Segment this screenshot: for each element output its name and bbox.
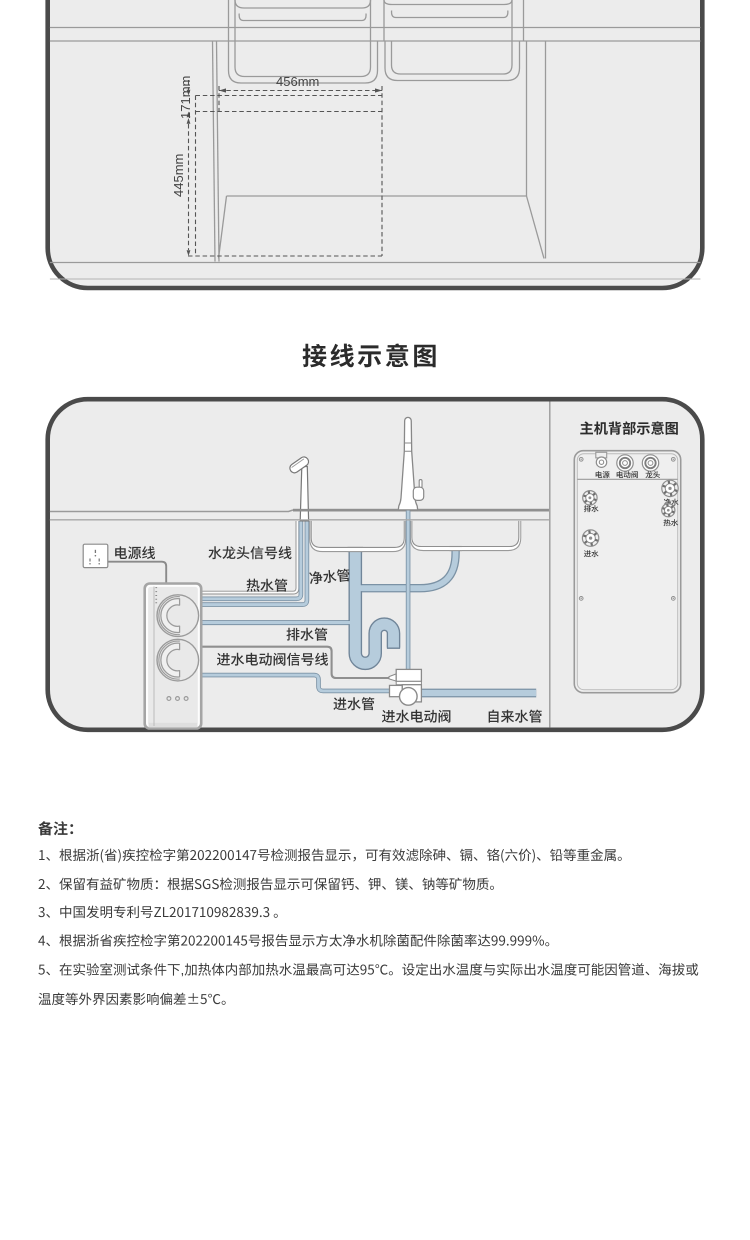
svg-text:水龙头信号线: 水龙头信号线: [208, 543, 292, 563]
svg-text:排水管: 排水管: [286, 625, 328, 645]
svg-text:4、根据浙省疾控检字第202200145号报告显示方太净水机: 4、根据浙省疾控检字第202200145号报告显示方太净水机除菌配件除菌率达99…: [38, 930, 558, 950]
svg-text:1、根据浙(省)疾控检字第202200147号检测报告显示，: 1、根据浙(省)疾控检字第202200147号检测报告显示，可有效滤除砷、镉、铬…: [38, 844, 631, 864]
svg-text:171mm: 171mm: [178, 76, 193, 119]
svg-text:进水管: 进水管: [333, 694, 375, 714]
svg-text:5、在实验室测试条件下,加热体内部加热水温最高可达95℃。设: 5、在实验室测试条件下,加热体内部加热水温最高可达95℃。设定出水温度与实际出水…: [38, 959, 699, 979]
svg-text:3、中国发明专利号ZL201710982839.3 。: 3、中国发明专利号ZL201710982839.3 。: [38, 901, 287, 921]
svg-text:电源: 电源: [595, 470, 611, 481]
svg-text:进水电动阀: 进水电动阀: [382, 707, 452, 727]
svg-text:445mm: 445mm: [171, 154, 186, 197]
svg-text:接线示意图: 接线示意图: [302, 337, 440, 373]
svg-text:进水电动阀信号线: 进水电动阀信号线: [217, 650, 329, 670]
svg-text:热水: 热水: [663, 518, 679, 529]
svg-text:净水管: 净水管: [308, 564, 351, 588]
svg-text:备注：: 备注：: [38, 818, 83, 839]
svg-text:进水: 进水: [584, 548, 600, 559]
svg-text:主机背部示意图: 主机背部示意图: [580, 419, 679, 439]
svg-text:456mm: 456mm: [276, 74, 319, 89]
svg-text:自来水管: 自来水管: [487, 707, 543, 727]
svg-text:龙头: 龙头: [645, 470, 661, 481]
svg-text:温度等外界因素影响偏差±5℃。: 温度等外界因素影响偏差±5℃。: [38, 988, 235, 1008]
svg-text:2、保留有益矿物质：根据SGS检测报告显示可保留钙、钾、镁、: 2、保留有益矿物质：根据SGS检测报告显示可保留钙、钾、镁、钠等矿物质。: [38, 873, 503, 893]
svg-text:热水管: 热水管: [246, 575, 288, 595]
svg-text:电动阀: 电动阀: [616, 470, 639, 481]
svg-text:电源线: 电源线: [114, 543, 156, 563]
